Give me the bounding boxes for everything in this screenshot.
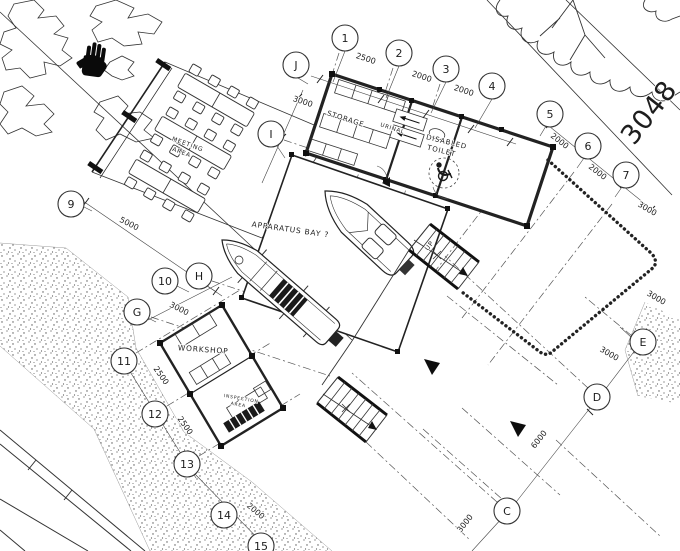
dimension-text: 3000 [455,513,475,535]
dimension-text: 2000 [411,69,433,84]
lot-number-label: 3048 [615,75,680,151]
dimension-text: 6000 [529,429,549,451]
dimension-text: 3000 [598,345,620,363]
dimension-text: 3000 [292,94,314,109]
grid-bubble-11: 11 [111,348,137,374]
grid-bubble-E: E [630,329,656,355]
grid-bubble-label: 14 [217,509,231,522]
grid-bubble-label: 7 [623,169,630,182]
direction-arrows [424,359,526,437]
dimension-text: 3000 [168,300,190,317]
grid-bubble-label: 9 [68,198,75,211]
grid-bubble-5: 5 [537,101,563,127]
grid-bubble-3: 3 [433,56,459,82]
grid-bubble-label: 6 [585,140,592,153]
hand-cursor-icon [75,40,110,78]
dimension-text: 2500 [355,51,377,66]
grid-bubble-label: 15 [254,540,268,551]
dimension-text: 3000 [636,200,658,218]
dimension-text: 2000 [587,162,609,182]
grid-bubble-label: 5 [547,108,554,121]
grid-bubble-label: 13 [180,458,194,471]
grid-bubble-label: J [293,59,297,72]
grid-bubble-label: 10 [158,275,172,288]
dimension-text: 5000 [118,215,140,232]
grid-bubble-D: D [584,384,610,410]
grid-bubble-9: 9 [58,191,84,217]
grid-bubble-label: G [133,306,142,319]
grid-bubble-label: 1 [342,32,349,45]
grid-bubble-6: 6 [575,133,601,159]
grid-bubble-label: 2 [396,47,403,60]
grid-bubble-J: J [283,52,309,78]
grid-bubble-label: 4 [489,80,496,93]
grid-bubble-label: E [640,336,647,349]
grid-bubble-I: I [258,121,284,147]
stairs-lower [317,377,387,442]
grid-bubble-H: H [186,263,212,289]
grid-bubble-label: H [195,270,203,283]
grid-bubble-4: 4 [479,73,505,99]
grid-bubble-label: D [593,391,601,404]
dimension-text: 2000 [453,83,475,98]
grid-bubble-12: 12 [142,401,168,427]
drawing-canvas[interactable]: 1234567JIHG9101112131415EDC 250020002000… [0,0,680,551]
grid-bubble-7: 7 [613,162,639,188]
grid-bubble-1: 1 [332,25,358,51]
grid-bubble-14: 14 [211,502,237,528]
grid-bubble-C: C [494,498,520,524]
grid-bubble-10: 10 [152,268,178,294]
grid-bubble-label: 11 [117,355,131,368]
grid-bubble-13: 13 [174,451,200,477]
grid-bubble-label: 3 [443,63,450,76]
grid-bubble-2: 2 [386,40,412,66]
grid-bubble-label: 12 [148,408,162,421]
grid-bubble-G: G [124,299,150,325]
grid-bubble-label: I [269,128,272,141]
grid-bubble-label: C [503,505,511,518]
site-plan-drawing: 1234567JIHG9101112131415EDC 250020002000… [0,0,680,551]
